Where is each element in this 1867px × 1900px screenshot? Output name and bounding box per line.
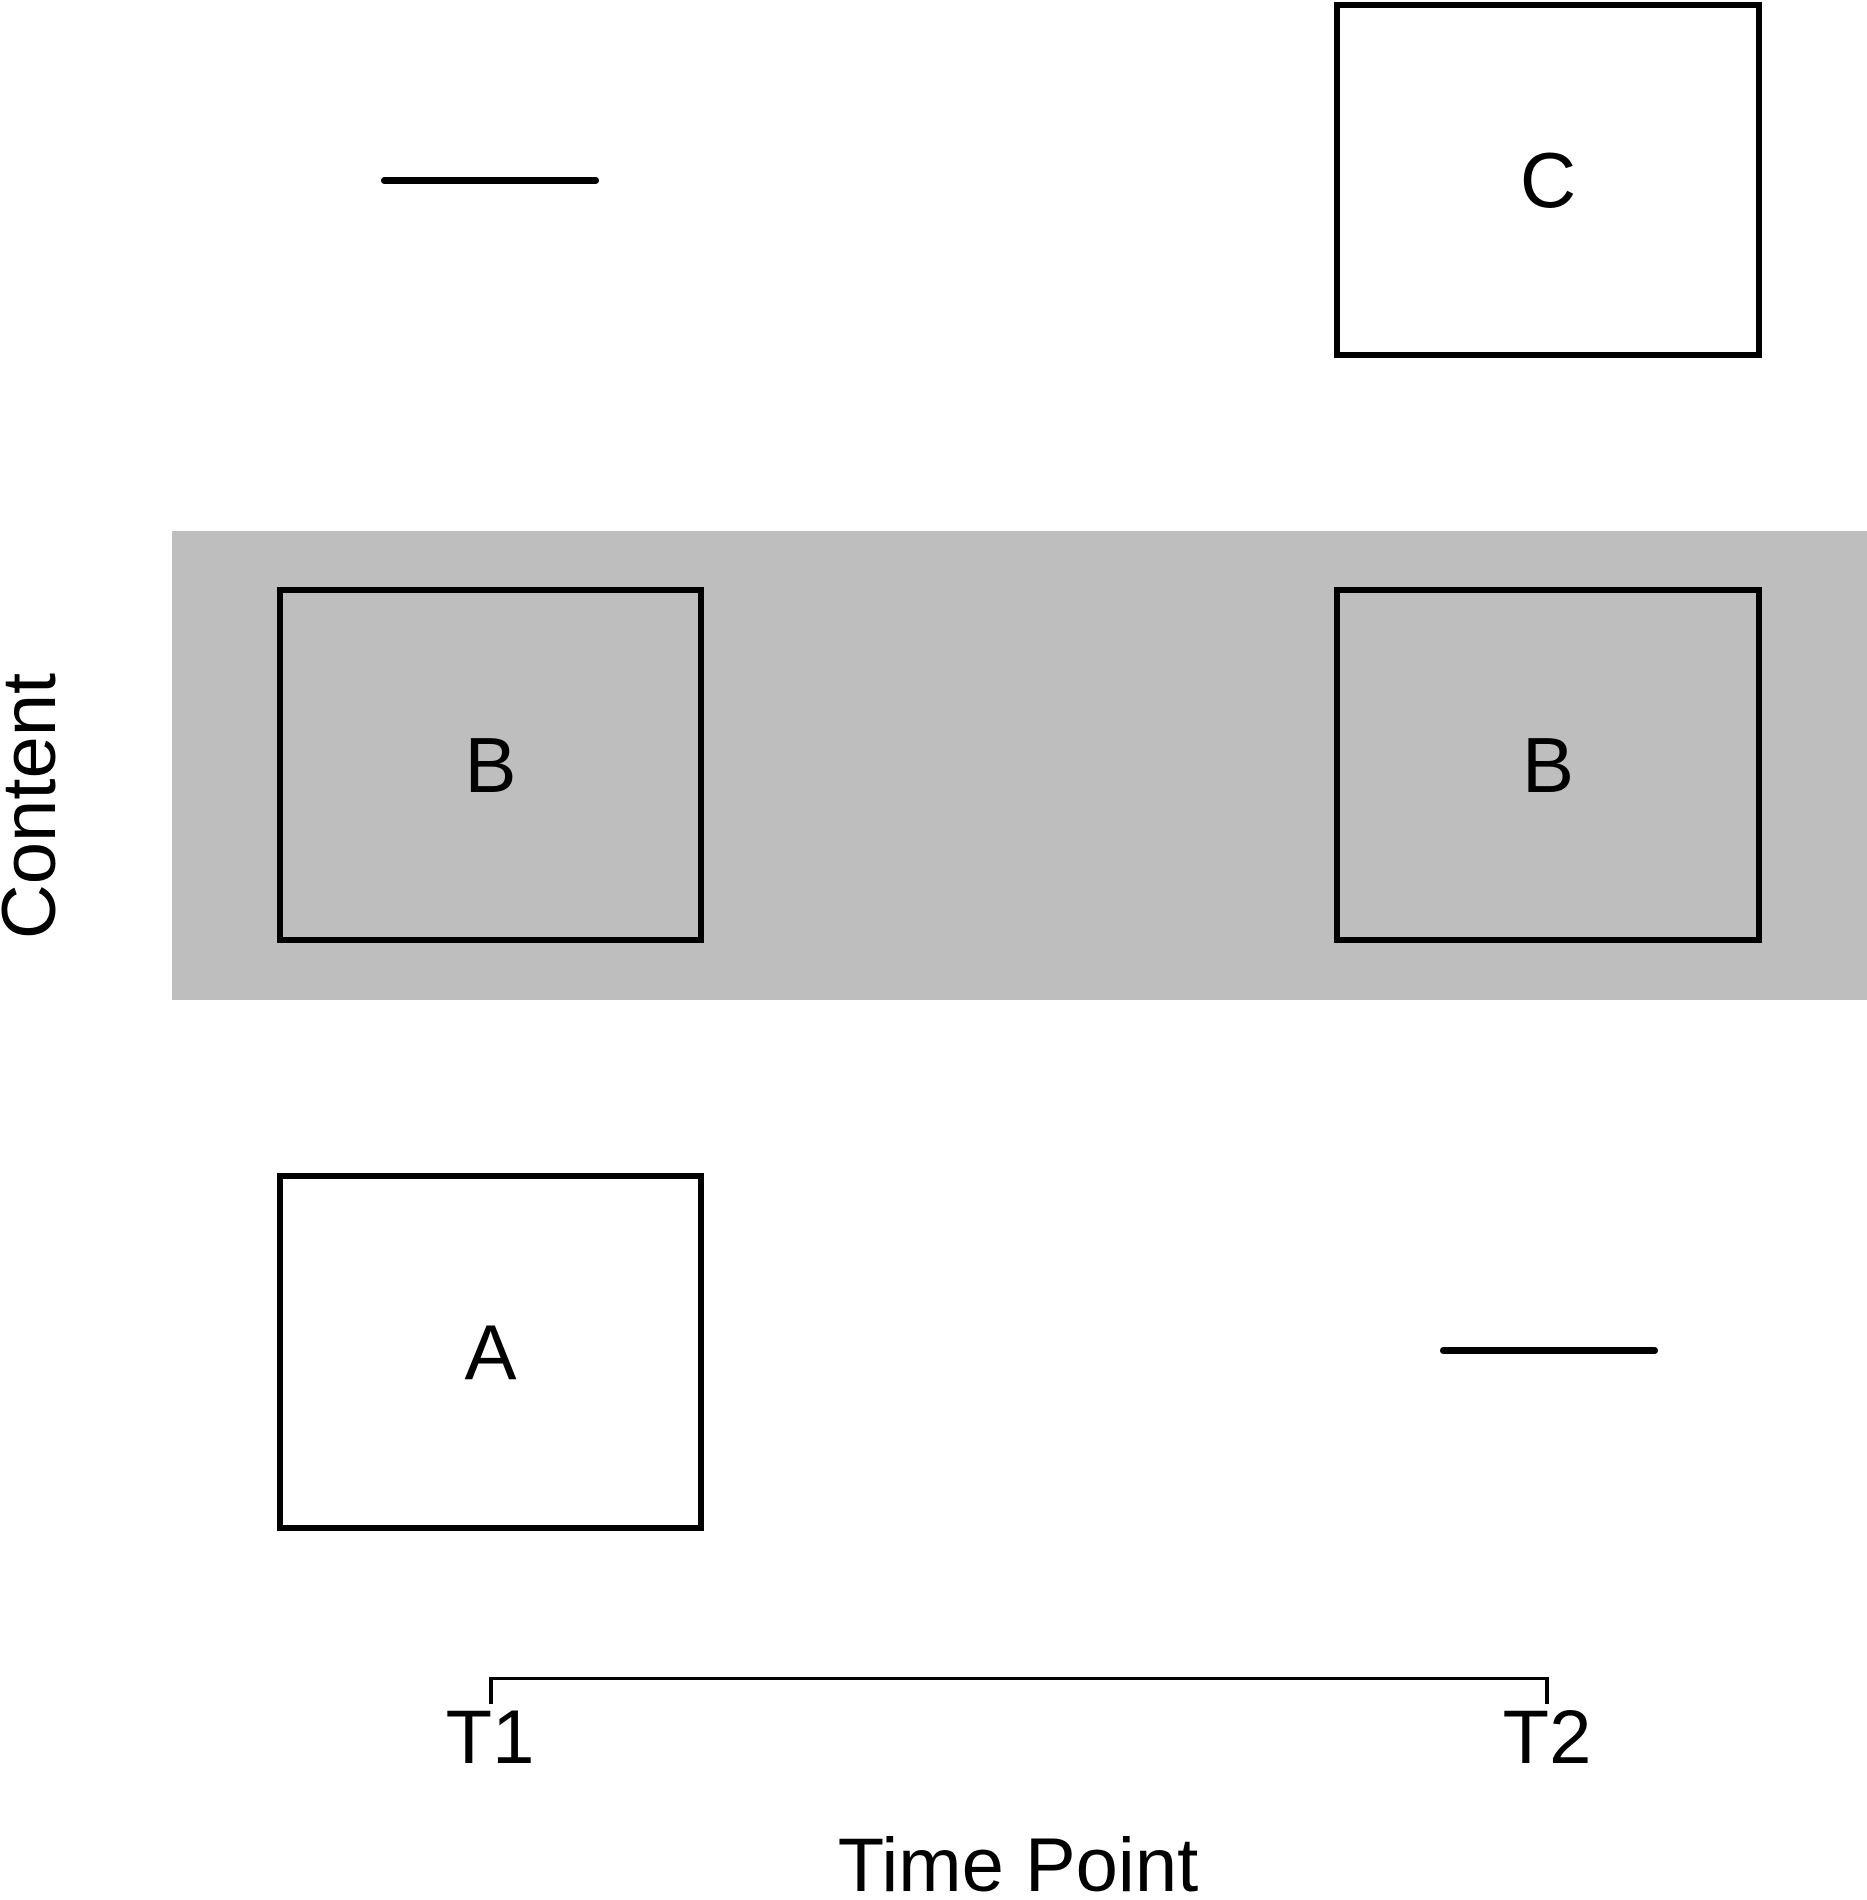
box-c-t2: C <box>1334 2 1762 358</box>
figure-canvas: C B B A T1 T2 Time Point Content <box>0 0 1867 1900</box>
box-b-t1-label: B <box>464 726 516 804</box>
y-axis-label: Content <box>0 673 68 939</box>
box-a-t1: A <box>277 1173 704 1531</box>
tick-label-t1: T1 <box>446 1700 535 1776</box>
x-axis-line <box>489 1677 1549 1680</box>
box-a-label: A <box>464 1313 516 1391</box>
box-c-label: C <box>1520 141 1576 219</box>
box-b-t2: B <box>1334 587 1762 943</box>
absent-marker-t1-top <box>381 177 599 184</box>
box-b-t2-label: B <box>1522 726 1574 804</box>
box-b-t1: B <box>277 587 704 943</box>
tick-label-t2: T2 <box>1503 1700 1592 1776</box>
absent-marker-t2-bottom <box>1440 1347 1658 1354</box>
x-axis-label: Time Point <box>838 1828 1198 1900</box>
